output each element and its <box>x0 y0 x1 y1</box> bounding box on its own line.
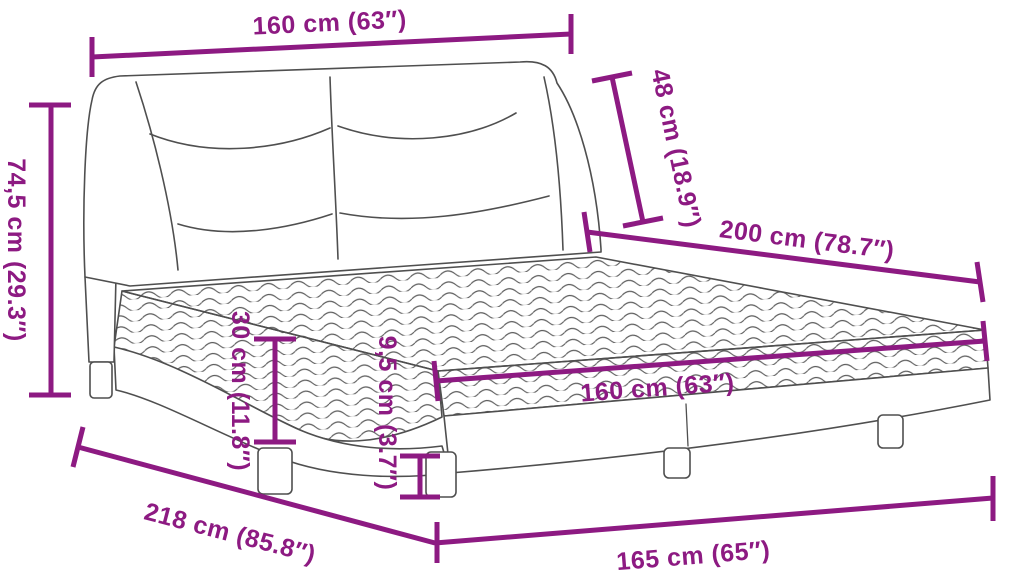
label-headboard-width: 160 cm (63″) <box>252 5 407 40</box>
label-leg-height: 9,5 cm (3.7″) <box>373 336 401 491</box>
headboard-side-panel <box>85 276 116 362</box>
bed-leg <box>426 452 456 497</box>
dimension-line <box>612 77 643 222</box>
label-headboard-height: 48 cm (18.9″) <box>645 66 706 230</box>
dimension-line <box>92 34 571 57</box>
bed-leg <box>258 448 292 494</box>
bed-dimension-diagram: 160 cm (63″) 48 cm (18.9″) 200 cm (78.7″… <box>0 0 1010 578</box>
label-frame-height: 30 cm (11.8″) <box>226 311 254 471</box>
dimension-overall-height <box>29 105 71 395</box>
bed-leg <box>90 362 112 398</box>
dimension-line <box>435 498 993 543</box>
bed-leg <box>878 415 903 448</box>
bed-artwork <box>84 62 990 497</box>
label-overall-depth: 218 cm (85.8″) <box>141 498 318 569</box>
bed-leg <box>664 448 690 478</box>
label-overall-width: 165 cm (65″) <box>615 536 771 576</box>
diagram-canvas: 160 cm (63″) 48 cm (18.9″) 200 cm (78.7″… <box>0 0 1010 578</box>
label-overall-height: 74,5 cm (29.3″) <box>2 158 30 341</box>
